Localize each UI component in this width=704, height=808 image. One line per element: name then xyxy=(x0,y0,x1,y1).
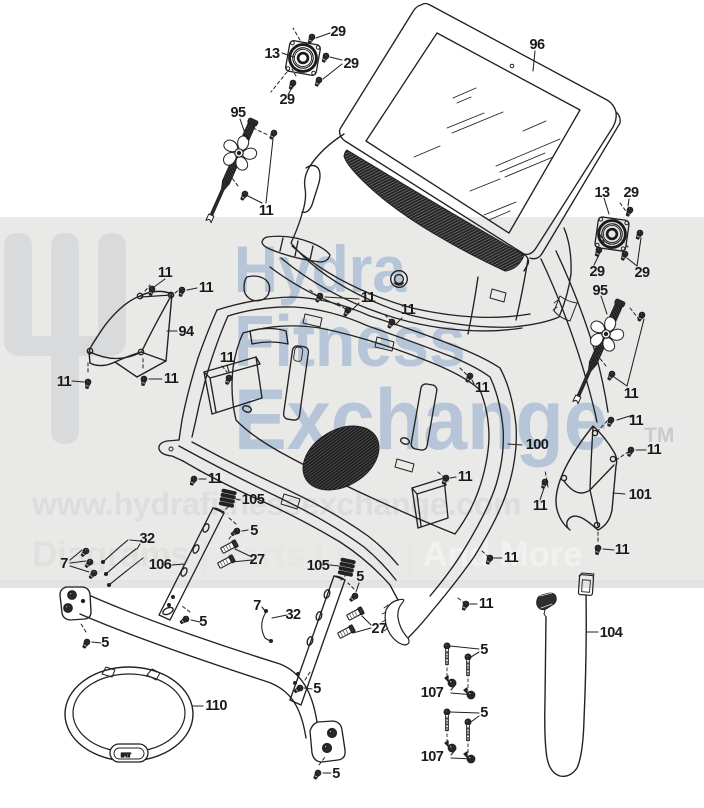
svg-text:13: 13 xyxy=(265,46,280,62)
svg-text:29: 29 xyxy=(344,56,359,72)
svg-text:27: 27 xyxy=(250,552,265,568)
svg-text:29: 29 xyxy=(331,24,346,40)
svg-text:29: 29 xyxy=(590,264,605,280)
svg-text:13: 13 xyxy=(595,185,610,201)
svg-text:11: 11 xyxy=(220,350,235,366)
svg-text:95: 95 xyxy=(231,105,246,121)
svg-text:11: 11 xyxy=(504,550,519,566)
svg-text:11: 11 xyxy=(259,203,274,219)
svg-text:11: 11 xyxy=(647,442,662,458)
svg-text:11: 11 xyxy=(615,542,630,558)
svg-text:11: 11 xyxy=(629,413,644,429)
svg-text:107: 107 xyxy=(421,685,444,701)
svg-text:5: 5 xyxy=(480,642,488,658)
svg-text:96: 96 xyxy=(530,37,545,53)
svg-text:5: 5 xyxy=(332,766,340,782)
svg-text:100: 100 xyxy=(526,437,549,453)
svg-text:101: 101 xyxy=(629,487,652,503)
svg-text:105: 105 xyxy=(307,558,330,574)
svg-text:105: 105 xyxy=(242,492,265,508)
svg-text:95: 95 xyxy=(593,283,608,299)
svg-text:11: 11 xyxy=(199,280,214,296)
svg-text:11: 11 xyxy=(479,596,494,612)
svg-text:11: 11 xyxy=(158,265,173,281)
svg-text:7: 7 xyxy=(253,598,261,614)
svg-text:104: 104 xyxy=(600,625,623,641)
svg-text:5: 5 xyxy=(356,569,364,585)
svg-text:110: 110 xyxy=(205,698,227,714)
svg-text:5: 5 xyxy=(250,523,258,539)
svg-text:29: 29 xyxy=(624,185,639,201)
svg-text:7: 7 xyxy=(60,556,68,572)
svg-text:11: 11 xyxy=(624,386,639,402)
svg-text:5: 5 xyxy=(313,681,321,697)
svg-text:11: 11 xyxy=(533,498,548,514)
svg-text:5: 5 xyxy=(101,635,109,651)
svg-text:94: 94 xyxy=(179,324,194,340)
svg-text:5: 5 xyxy=(480,705,488,721)
svg-text:106: 106 xyxy=(149,557,172,573)
svg-text:5: 5 xyxy=(199,614,207,630)
svg-text:11: 11 xyxy=(401,302,416,318)
svg-text:27: 27 xyxy=(372,621,387,637)
svg-text:11: 11 xyxy=(361,290,376,306)
svg-text:32: 32 xyxy=(140,531,155,547)
svg-text:11: 11 xyxy=(208,471,223,487)
svg-text:29: 29 xyxy=(635,265,650,281)
svg-text:11: 11 xyxy=(57,374,72,390)
svg-text:11: 11 xyxy=(458,469,473,485)
svg-text:11: 11 xyxy=(164,371,179,387)
svg-text:107: 107 xyxy=(421,749,444,765)
svg-text:32: 32 xyxy=(286,607,301,623)
svg-text:iFIT: iFIT xyxy=(121,753,131,759)
svg-text:29: 29 xyxy=(280,92,295,108)
svg-text:11: 11 xyxy=(475,380,490,396)
